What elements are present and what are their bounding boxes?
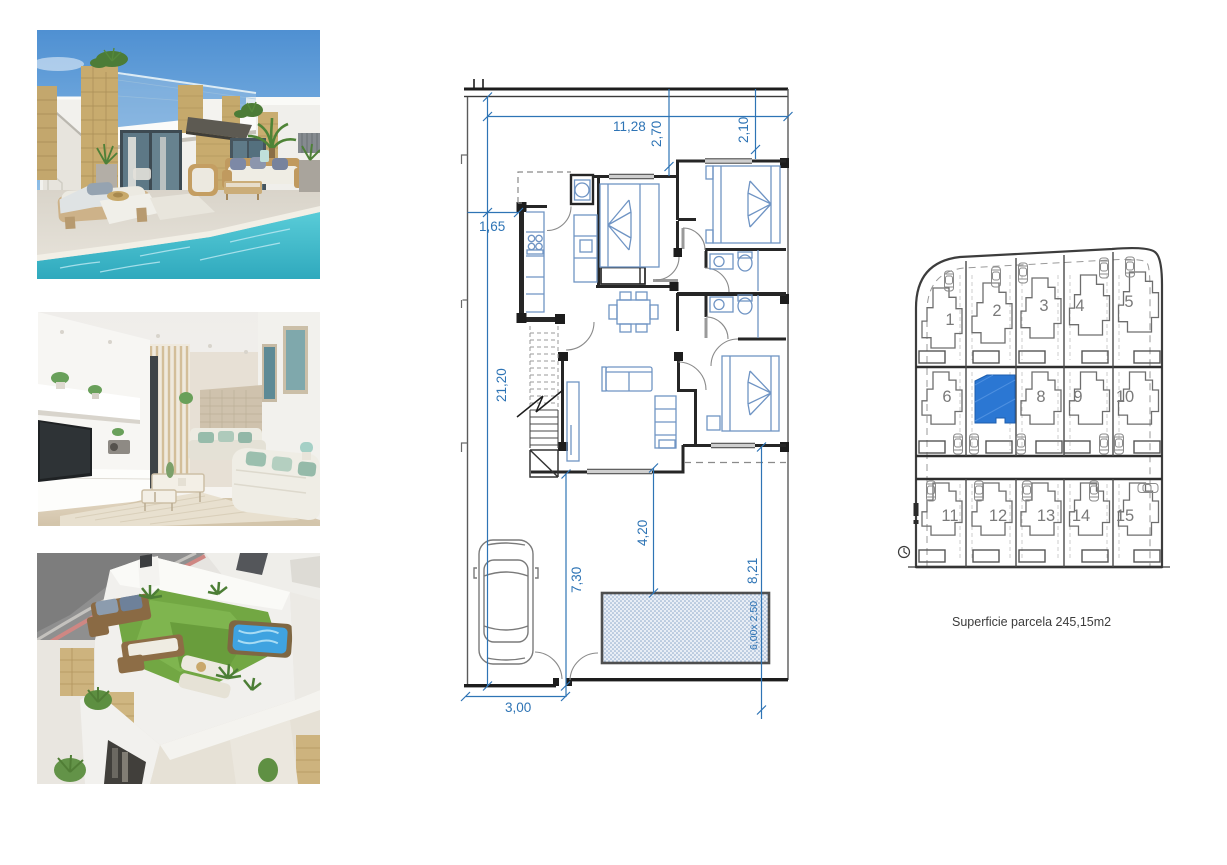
- svg-text:12: 12: [989, 507, 1007, 525]
- svg-text:3: 3: [1039, 297, 1048, 315]
- svg-text:6: 6: [942, 388, 951, 406]
- svg-text:5: 5: [1124, 293, 1133, 311]
- svg-text:15: 15: [1116, 507, 1134, 525]
- svg-text:21,20: 21,20: [494, 368, 509, 402]
- svg-text:10: 10: [1116, 388, 1134, 406]
- svg-text:4,20: 4,20: [635, 520, 650, 546]
- svg-text:1: 1: [945, 311, 954, 329]
- svg-text:2,70: 2,70: [649, 121, 664, 147]
- svg-text:9: 9: [1073, 388, 1082, 406]
- svg-text:3,00: 3,00: [505, 700, 531, 715]
- svg-text:8: 8: [1036, 388, 1045, 406]
- svg-text:6,00x 2,50: 6,00x 2,50: [748, 601, 760, 650]
- svg-text:8,21: 8,21: [745, 558, 760, 584]
- svg-text:4: 4: [1075, 297, 1084, 315]
- svg-text:14: 14: [1072, 507, 1090, 525]
- svg-text:2: 2: [992, 302, 1001, 320]
- svg-text:13: 13: [1037, 507, 1055, 525]
- svg-text:11,28: 11,28: [613, 119, 646, 134]
- svg-text:2,10: 2,10: [736, 117, 751, 143]
- svg-text:7,30: 7,30: [569, 567, 584, 593]
- svg-text:11: 11: [941, 507, 958, 525]
- svg-text:1,65: 1,65: [479, 219, 505, 234]
- svg-text:Superficie parcela 245,15m2: Superficie parcela 245,15m2: [952, 615, 1111, 629]
